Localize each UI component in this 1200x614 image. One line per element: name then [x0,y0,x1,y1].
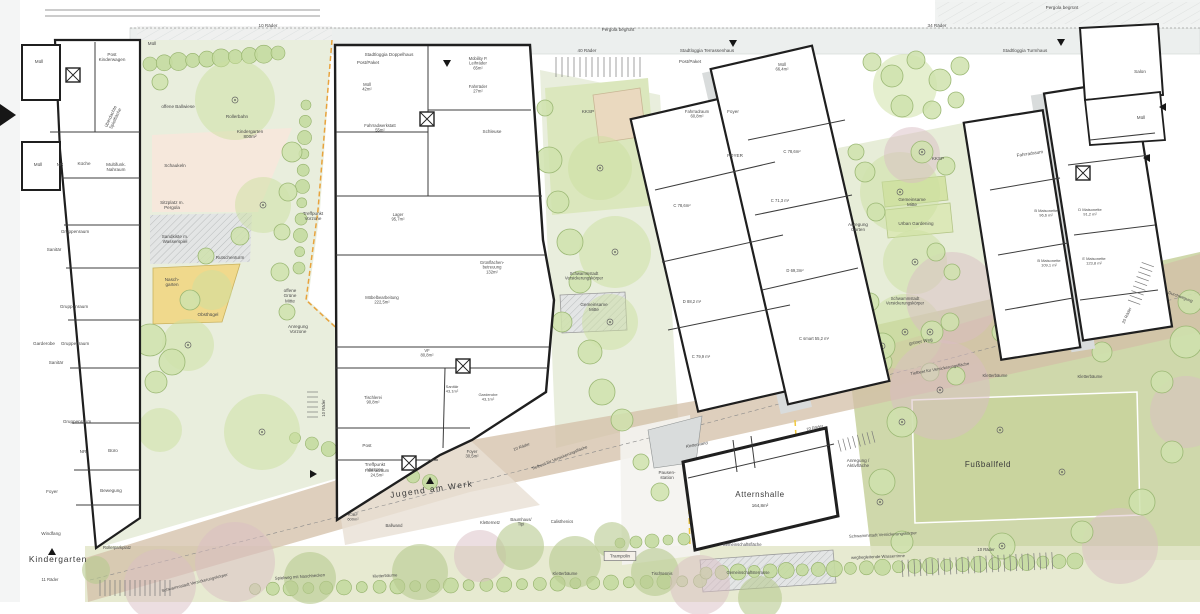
plan-label: Gemeinschaftsfläche [722,542,762,547]
plan-label-line: Tipi [518,522,525,527]
plan-label: Bewegung [100,488,122,493]
plan-label-line: Bewegung [100,488,122,493]
fussballfeld-title: Fußballfeld [965,460,1011,469]
plan-label-line: Foyer [727,109,739,114]
plan-label-line: Pergola begrünt [1046,5,1079,10]
plan-label: NR [57,162,64,167]
tree [948,92,964,108]
plan-label-line: C 78,6m² [783,149,801,154]
plan-label-line: 132m² [486,269,498,274]
plan-label: Salon [1134,69,1146,74]
plan-label: Lager95,7m² [391,212,405,222]
kindergarten-title: Kindergarten [29,554,87,564]
plan-label-line: Kletterbäume [1078,374,1104,379]
planting-dot-center [609,321,611,323]
plan-label: Gemeinschaftsterrasse [726,570,770,575]
tree [186,53,200,67]
tree [1082,508,1158,584]
tree [971,556,987,572]
plan-label: Sanitär [47,247,62,252]
plan-label: Küche [77,161,90,166]
tree [891,95,913,117]
stair-elevator [420,112,434,126]
plan-label-line: 222,5m² [374,300,390,305]
tree [282,142,302,162]
plan-label-line: Gemeinschaftsterrasse [726,570,770,575]
plan-label: Windfang [41,531,61,536]
planting-dot-center [234,99,236,101]
plan-label: Foyer [727,109,739,114]
plan-label: Gruppenraum [63,419,92,424]
right-salon-block [1085,92,1165,145]
plan-label: Sandkiste m.Wasserspiel [162,234,189,244]
tree [373,580,386,593]
plan-label-line: Post/Paket [357,60,380,65]
tree [796,564,808,576]
plan-label: Post/Paket [357,60,380,65]
plan-label-line: 10 Räder [259,23,278,28]
tree [678,533,690,545]
plan-label: Müll [148,41,156,46]
tree [1151,371,1173,393]
plan-label-line: 90,8m² [366,400,380,405]
plan-label-line: D 88,2 m² [683,299,702,304]
plan-label: NR [80,449,87,454]
atternshalle-title: Atternshalle [735,490,784,499]
plan-label-line: Gemeinschaftsfläche [722,542,762,547]
tree [557,229,583,255]
tree [271,263,289,281]
plan-label: 34 Räder [928,23,947,28]
plan-label-line: C 79,9 m² [692,354,711,359]
plan-label: C smart 55,2 m² [799,336,830,341]
plan-label-line: 55m² [375,128,385,133]
atternshalle-building [683,428,838,550]
tree [198,248,214,264]
plan-label: Multifunk.Nahraum [106,162,126,172]
tree [533,577,546,590]
plan-label: Sanitär43,1m² [446,384,459,393]
plan-label: Tischlerei90,8m² [364,395,382,405]
plan-label-line: Rollerbahn [226,114,249,119]
plan-label-line: Mitte [285,298,295,303]
plan-label-line: garten [165,282,178,287]
plan-label: Garderobe [33,341,55,346]
plan-label-line: 42m² [362,87,372,92]
plan-label: KKSP [932,156,944,161]
plan-label: D 88,2 m² [683,299,702,304]
kindergarten-building [55,40,140,548]
tree [951,57,969,75]
tree [195,522,275,602]
bike-rack [556,57,640,77]
tree [305,437,318,450]
tree [633,454,649,470]
plan-label-line: Tischtennis [651,571,672,576]
plan-label-line: Gruppenraum [61,341,90,346]
plan-label-line: Gruppenraum [61,229,90,234]
tree [297,198,307,208]
planting-dot-center [999,429,1001,431]
tree [299,115,311,127]
tree [929,69,951,91]
plan-label-line: KKSP [582,109,594,114]
plan-label-line: Sanitär [49,360,64,365]
site-plan-canvas: 10 RäderMüllPostKinderwagenüberdachteSpi… [0,0,1200,614]
plan-label-line: Kletternetz [480,520,500,525]
plan-label-line: Müll [35,59,43,64]
kindergarten-annex-1 [22,45,60,100]
tree [1071,521,1093,543]
tree [301,100,311,110]
plan-label: SchwammstadtVersickerungskörper [886,296,925,306]
plan-label: Post/Paket [679,59,702,64]
plan-label: 10 Räder [977,547,995,552]
tree [811,562,825,576]
plan-label: Tischtennis [651,571,672,576]
plan-label: Rutschenturm [216,255,245,260]
planting-dot-center [914,261,916,263]
plan-label: Schaukeln [164,163,186,168]
planting-dot-center [599,167,601,169]
plan-label-line: Foyer [46,489,58,494]
tree [611,409,633,431]
tree [907,51,925,69]
plan-label-line: 40 Räder [578,48,597,53]
tree [159,349,185,375]
plan-label-line: Büro [108,448,118,453]
plan-label-line: Kletterbäume [553,571,579,576]
planting-dot-center [939,389,941,391]
tree [663,535,673,545]
plan-label: Schleuse [483,129,502,134]
planting-dot-center [901,421,903,423]
plan-label-line: Müll [34,162,42,167]
plan-label-line: 66,4m² [775,67,789,72]
planting-dot-center [904,331,906,333]
plan-label-line: Salon [1134,69,1146,74]
tree [670,555,730,614]
plan-label: Sanitär [49,360,64,365]
plan-label-line: Stadtloggia Terrassenhaus [680,48,735,53]
planting-dot-center [1001,545,1003,547]
bike-rack-tick [838,440,841,452]
tree [463,580,474,591]
plan-label: offene Ballwiese [161,104,195,109]
planting-dot-center [929,331,931,333]
tree [944,264,960,280]
tree [552,312,572,332]
tree [180,290,200,310]
plan-label-line: 24,5m² [370,473,384,478]
plan-label-line: C smart 55,2 m² [799,336,830,341]
tree [356,582,367,593]
plan-label: Post [362,443,372,448]
margin-left [0,0,20,614]
plan-label: Pergola begrünt [602,27,635,32]
plan-label: Kletterbäume [983,373,1009,378]
plan-label: C 71,3 m² [771,198,790,203]
plan-label-line: 10 Räder [321,399,326,417]
tree [855,162,875,182]
plan-label-line: Küche [77,161,90,166]
tree [1170,326,1200,358]
planting-dot-center [614,251,616,253]
tree [1019,555,1035,571]
tree [989,558,1001,570]
plan-label-line: Windfang [41,531,61,536]
plan-label-line: Calisthenics [551,519,574,524]
plan-label-line: C 78,6m² [673,203,691,208]
tree [536,147,562,173]
tree [255,45,273,63]
plan-label-line: 95,7m² [391,217,405,222]
plan-label: Rollerbahn [226,114,249,119]
tree [826,561,842,577]
plan-label-line: Gruppenraum [63,419,92,424]
tree [295,247,305,257]
plan-label-line: Sanitär [47,247,62,252]
tree [1161,441,1183,463]
plan-label-line: Pergola begrünt [602,27,635,32]
tree [274,224,290,240]
tree [578,340,602,364]
plan-label: D 69,3m² [786,268,804,273]
tree [947,367,965,385]
plan-label: FOYER [727,153,744,158]
plan-label: Urban Gardening [898,221,934,226]
plan-label: C 78,6m² [673,203,691,208]
tree [778,562,794,578]
plan-label-line: 600m² [347,516,359,521]
tree [1092,342,1112,362]
tree [537,100,553,116]
plan-label-line: Obsthügel [198,312,219,317]
plan-label: Gruppenraum [61,229,90,234]
tree [392,544,448,600]
plan-label-line: Gruppenraum [60,304,89,309]
plan-label-line: Garten [851,227,865,232]
tree [497,577,512,592]
stair-elevator [402,456,416,470]
atternshalle-area-label: 164,8m² [752,503,769,508]
plan-label-line: Rollerparkplatz [103,545,131,550]
plan-label: Stadtloggia Turmhaus [1003,48,1048,53]
plan-label: C 79,9 m² [692,354,711,359]
plan-label: Nasch-garten [165,277,180,287]
tree [589,379,615,405]
tree [297,164,309,176]
plan-label-line: 43,1m² [482,396,495,401]
tree [941,313,959,331]
tree [496,522,544,570]
plan-label-line: Versickerungskörper [886,301,925,306]
tree [145,371,167,393]
plan-label: Büro [108,448,118,453]
plan-label-line: Stadtloggia Turmhaus [1003,48,1048,53]
tree [549,536,601,588]
plan-label-line: Post/Paket [679,59,702,64]
tree [298,131,312,145]
plan-label-line: KKSP [932,156,944,161]
bike-rack-tick [848,437,851,449]
tree [863,53,881,71]
planting-dot-center [261,431,263,433]
stair-elevator [1076,166,1090,180]
plan-label: Stadtloggia Doppelhaus [365,52,414,57]
plan-label: 10 Räder [321,399,326,417]
plan-label-line: offene Ballwiese [161,104,195,109]
stair-elevator [66,68,80,82]
plan-label-line: C 71,3 m² [771,198,790,203]
plan-label: Foyer30,5m² [465,449,479,459]
tree [279,183,297,201]
plan-label-line: Urban Gardening [898,221,934,226]
plan-label: Ballwand [386,523,404,528]
tree [874,559,890,575]
plan-label-line: Aktivfläche [847,463,870,468]
plan-label: Müll [1137,115,1145,120]
plan-label-line: 123,8 m² [1086,260,1102,265]
plan-label-line: 43,1m² [446,388,459,393]
plan-label: Gruppenraum [61,341,90,346]
plan-label-line: Stadtloggia Doppelhaus [365,52,414,57]
plan-label-line: Müll [148,41,156,46]
plan-label: Pausen-station [658,470,676,480]
plan-label-line: Rutschenturm [216,255,245,260]
plan-label-line: 27m² [473,89,483,94]
plan-label-line: FOYER [727,153,744,158]
boxed-label: Trampolin [610,554,631,559]
plan-label: SchwammstadtVersickerungskörper [565,271,604,281]
tree [844,562,856,574]
plan-label-line: NR [80,449,87,454]
plan-label-line: 11 Räder [42,577,60,582]
plan-svg: 10 RäderMüllPostKinderwagenüberdachteSpi… [0,0,1200,614]
plan-label-line: 91,2 m² [1083,211,1097,216]
planting-dot-center [879,501,881,503]
plan-label: Obsthügel [198,312,219,317]
stair-elevator [456,359,470,373]
planting-dot-center [921,151,923,153]
tree [143,57,157,71]
plan-label-line: 34 Räder [928,23,947,28]
plan-label-line: Mitte [907,202,917,207]
plan-label-line: Kinderwagen [99,57,126,62]
plan-label-line: 30,5m² [465,454,479,459]
plan-label: Kletterbäume [1078,374,1104,379]
tree [547,191,569,213]
plan-label: Kletterbäume [553,571,579,576]
tree [517,579,528,590]
plan-label-line: Wasserspiel [163,239,188,244]
plan-label: C 78,6m² [783,149,801,154]
tree [927,243,945,261]
tree [231,227,249,245]
bike-rack-tick [843,439,846,451]
tree [1037,556,1049,568]
tree [138,408,182,452]
plan-label: Gruppenraum [60,304,89,309]
scalebar [45,10,320,16]
plan-label: KJBF600m² [347,512,359,521]
planting-dot-center [899,191,901,193]
tree [1052,555,1066,569]
plan-label: Stadtloggia Terrassenhaus [680,48,735,53]
tree [271,46,285,60]
tree [293,262,305,274]
plan-label-line: 800m² [243,134,256,139]
plan-label-line: D 69,3m² [786,268,804,273]
plan-label-line: 96,6 m² [1039,212,1053,217]
planting-dot-center [262,204,264,206]
plan-label: Foyer [46,489,58,494]
plan-label: Pergola begrünt [1046,5,1079,10]
plan-label-line: Garderobe [33,341,55,346]
plan-label-line: Vorzone [305,216,322,221]
plan-label: KKSP [582,109,594,114]
tree [604,575,619,590]
right-top-block [1080,24,1163,100]
tree [152,74,168,90]
tree [169,53,187,71]
plan-label: Müll [35,59,43,64]
tree [279,304,295,320]
tree [651,483,669,501]
tree [923,558,939,574]
tree [337,580,352,595]
plan-label-line: Ballwand [386,523,404,528]
plan-label: offeneGrüneMitte [284,288,297,303]
plan-label-line: 60,8m² [690,114,704,119]
tree [321,442,336,457]
tree [869,469,895,495]
planting-dot-center [1061,471,1063,473]
plan-label-line: station [660,475,674,480]
bike-rack-tick [852,436,855,448]
tree [1129,489,1155,515]
plan-label: TreffpunktVorzone [303,211,324,221]
plan-label: Rollerparkplatz [103,545,131,550]
plan-label: Calisthenics [551,519,574,524]
plan-label-line: 80,8m² [420,353,434,358]
plan-label: Anregung /Aktivfläche [847,458,870,468]
plan-label-line: Vorzone [290,329,307,334]
plan-label-line: NR [57,162,64,167]
plan-label-line: Kletterbäume [983,373,1009,378]
planting-dot-center [187,344,189,346]
plan-label-line: Pergola [164,205,180,210]
plan-label: Kletternetz [480,520,500,525]
tree [630,536,642,548]
plan-label: Müll [34,162,42,167]
plan-label-line: 10 Räder [977,547,995,552]
tree [296,180,310,194]
plan-label: 10 Räder [259,23,278,28]
tree [923,101,941,119]
plan-label: AnregungVorzone [288,324,308,334]
tree [881,65,903,87]
plan-label-line: Schleuse [483,129,502,134]
plan-label: 40 Räder [578,48,597,53]
tree [859,561,873,575]
plan-label-line: Versickerungskörper [565,276,604,281]
plan-label-line: 109,1 m² [1041,262,1057,267]
plan-label-line: 65m² [473,65,483,70]
plan-label-line: Müll [1137,115,1145,120]
plan-label-line: Schaukeln [164,163,186,168]
plan-label-line: Nahraum [107,167,126,172]
